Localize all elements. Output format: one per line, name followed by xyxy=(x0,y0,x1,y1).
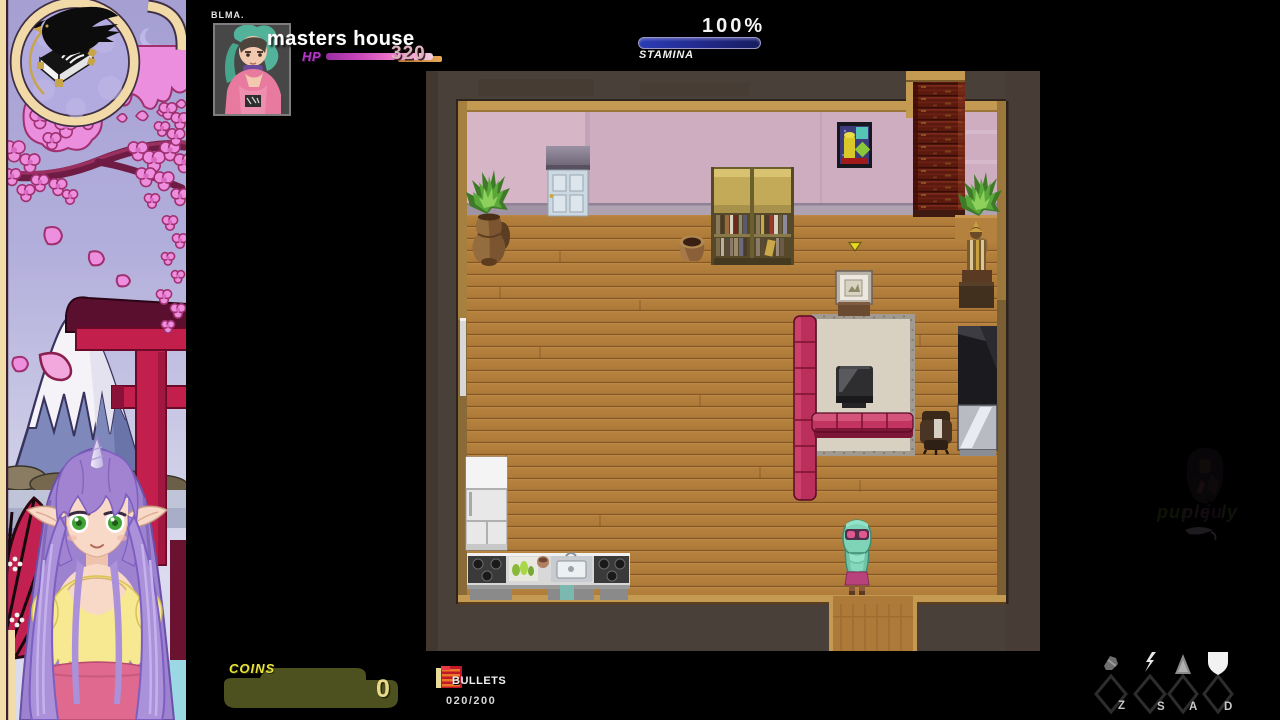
svg-text:ju: ju xyxy=(1203,502,1223,522)
svg-text:S: S xyxy=(1157,701,1165,713)
svg-text:ly: ly xyxy=(1221,502,1238,522)
svg-text:D: D xyxy=(1224,701,1232,713)
svg-text:A: A xyxy=(1189,701,1197,713)
svg-text:Z: Z xyxy=(1118,700,1125,712)
